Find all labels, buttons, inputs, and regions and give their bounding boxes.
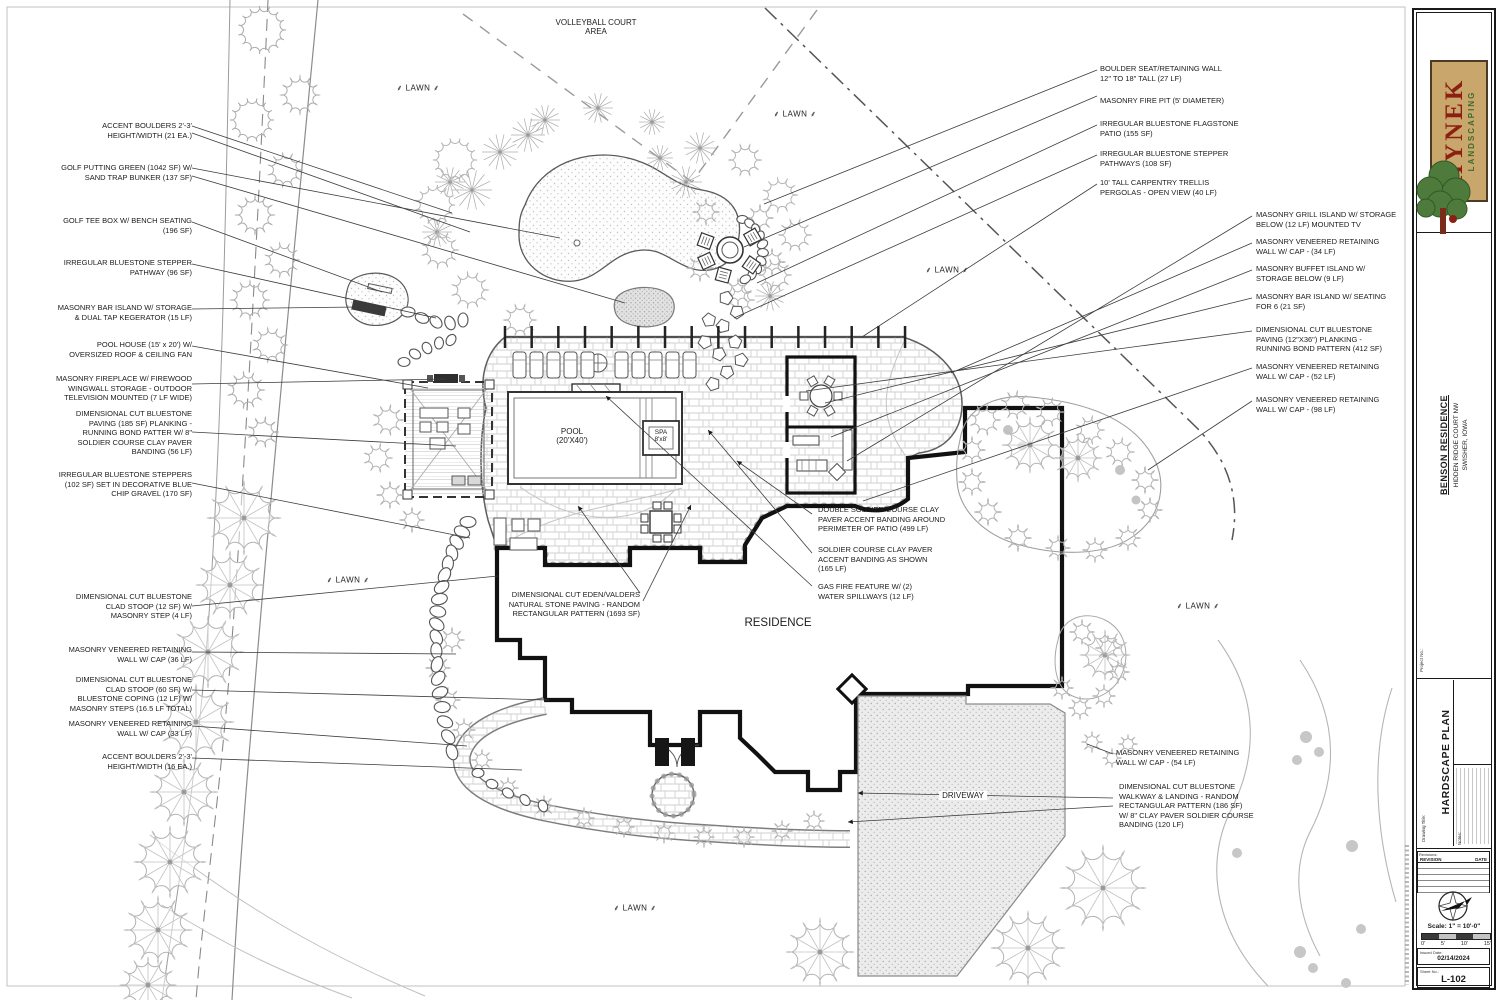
title-block-divider [1453,764,1492,765]
leader-line [951,243,1252,373]
callout-label: MASONRY BAR ISLAND W/ SEATING FOR 6 (21 … [1256,292,1386,311]
revisions-table: Revisions: REVISION DATE [1417,851,1490,893]
lawn-label: ⸙ LAWN ⸙ [773,109,816,120]
scale-tick: 15' [1484,941,1491,947]
callout-label: MASONRY FIREPLACE W/ FIREWOOD WINGWALL S… [56,374,192,403]
sand-bunker [614,287,674,326]
leader-line [192,726,467,746]
tree-icon [530,105,560,134]
boulder-icon [429,669,448,688]
tree-icon [583,93,613,122]
lounge-chair-icon [649,352,662,378]
drawing-title-label: Drawing Title: [1421,815,1426,842]
callout-label: MASONRY VENEERED RETAINING WALL W/ CAP (… [69,719,192,738]
sheet-number-value: L-102 [1418,974,1489,985]
shrub-icon [249,417,278,447]
callout-label: IRREGULAR BLUESTONE STEPPER PATHWAY (96 … [64,258,192,277]
shrub-icon [804,811,824,831]
tree-icon [197,552,263,618]
tree-icon [992,912,1064,984]
scale-tick: 0' [1421,941,1425,947]
lawn-label: ⸙ LAWN ⸙ [613,903,656,914]
lawn-label: ⸙ LAWN ⸙ [396,83,439,94]
tree-icon [208,482,280,554]
lawn-label: ⸙ LAWN ⸙ [1176,601,1219,612]
scale-text: Scale: 1" = 10'-0" [1414,923,1494,930]
callout-label: MASONRY VENEERED RETAINING WALL W/ CAP -… [1256,362,1379,381]
callout-label: DIMENSIONAL CUT EDEN/VALDERS NATURAL STO… [509,590,640,619]
leader-line [734,155,1097,318]
boulder-icon [444,333,458,348]
shrub-icon [1116,526,1140,550]
shrub-icon [416,185,455,225]
leader-line [1148,401,1252,470]
shrub-icon [453,719,475,741]
shrub-icon [231,281,269,319]
shrub-icon [1132,467,1158,493]
leader-line [192,690,549,700]
boulder-icon [434,337,444,349]
area-label: RESIDENCE [744,617,811,629]
leader-line [192,126,452,213]
lounge-chair-icon [564,352,577,378]
tree-icon [639,109,665,134]
shrub-icon [1107,661,1129,683]
lounge-chair-icon [632,352,645,378]
callout-label: POOL HOUSE (15' x 20') W/ OVERSIZED ROOF… [69,340,192,359]
tree-icon [787,919,853,985]
callout-label: 10' TALL CARPENTRY TRELLIS PERGOLAS - OP… [1100,178,1217,197]
callout-label: MASONRY VENEERED RETAINING WALL W/ CAP -… [1256,237,1379,256]
area-label: SPA 8'x8' [655,429,668,443]
shrub-icon [1083,538,1107,562]
callout-label: GAS FIRE FEATURE W/ (2) WATER SPILLWAYS … [818,582,914,601]
callout-label: DIMENSIONAL CUT BLUESTONE PAVING (12"X36… [1256,325,1382,354]
callout-label: DIMENSIONAL CUT BLUESTONE PAVING (185 SF… [76,409,192,457]
shrub-icon [1070,620,1094,644]
callout-label: MASONRY VENEERED RETAINING WALL W/ CAP -… [1256,395,1379,414]
project-title: BENSON RESIDENCE [1439,395,1449,495]
buffet-island [793,436,819,445]
issued-date-box: Issued Date: 02/14/2024 [1417,948,1490,965]
callout-label: GOLF TEE BOX W/ BENCH SEATING (196 SF) [63,216,192,235]
putting-hole [574,240,580,246]
shrub-icon [374,405,403,435]
boulder-icon [414,311,431,326]
boulder-icon [458,313,468,327]
shrub-icon [239,6,287,54]
outdoor-kitchen [783,357,855,493]
area-label: DRIVEWAY [939,791,987,800]
lounge-chair-icon [683,352,696,378]
shrub-icon [453,272,488,308]
boulder-icon [398,358,410,367]
callout-label: ACCENT BOULDERS 2'-3' HEIGHT/WIDTH (21 E… [102,121,192,140]
tree-icon [125,897,191,963]
pool-house [403,374,494,499]
boulder-icon [420,341,434,356]
callout-label: MASONRY BUFFET ISLAND W/ STORAGE BELOW (… [1256,264,1365,283]
callout-label: IRREGULAR BLUESTONE FLAGSTONE PATIO (155… [1100,119,1239,138]
leader-line [192,222,382,292]
project-info: BENSON RESIDENCE HIDDEN RIDGE COURT NW S… [1434,230,1474,660]
plan-sheet: ACCENT BOULDERS 2'-3' HEIGHT/WIDTH (21 E… [0,0,1500,1000]
north-arrow-compass [1431,888,1477,924]
callout-label: MASONRY FIRE PIT (5' DIAMETER) [1100,96,1224,106]
shrub-icon [433,139,477,182]
scale-tick: 10' [1461,941,1468,947]
boulder-icon [435,714,454,731]
shrub-icon [472,750,492,770]
sheet-number-box: Sheet No.: L-102 [1417,967,1490,988]
callout-label: DOUBLE SOLDIER COURSE CLAY PAVER ACCENT … [818,505,945,534]
tree-icon [135,827,205,897]
callout-label: MASONRY GRILL ISLAND W/ STORAGE BELOW (1… [1256,210,1396,229]
lounge-chair-icon [666,352,679,378]
shrub-icon [729,145,761,175]
callout-label: MASONRY BAR ISLAND W/ STORAGE & DUAL TAP… [58,303,192,322]
lawn-label: ⸙ LAWN ⸙ [925,265,968,276]
boulder-icon [443,315,457,332]
area-label: VOLLEYBALL COURT AREA [556,18,637,36]
boulder-icon [430,684,449,701]
fire-pit-area [717,237,743,263]
scale-bar: 0' 5' 10' 15' [1421,933,1491,947]
tree-icon [511,118,545,151]
shrub-icon [236,196,274,234]
tree-icon [482,134,518,169]
tree-icon [1061,846,1145,930]
area-label: POOL (20'X40') [556,427,588,445]
site-plan-drawing [0,0,1500,1000]
lounge-chair-icon [513,352,526,378]
fine-print-strip [1405,845,1409,985]
issued-date-value: 02/14/2024 [1418,955,1489,962]
chair-icon [800,392,808,400]
shrub-icon [764,178,797,212]
lawn-label: ⸙ LAWN ⸙ [326,575,369,586]
lounge-chair-icon [530,352,543,378]
shrub-icon [377,482,403,508]
callout-label: DIMENSIONAL CUT BLUESTONE CLAD STOOP (60… [70,675,192,713]
tree-icon [452,171,492,210]
tree-icon [435,167,465,196]
boulders-bottom-right [1232,731,1366,988]
title-block-divider [1416,848,1492,849]
lounge-chair-icon [581,352,594,378]
notes-label: Notes: [1457,832,1462,845]
wall-opening [783,442,790,458]
scale-tick: 5' [1441,941,1445,947]
shrub-icon [1138,498,1162,522]
boulder-icon [430,592,448,606]
leader-line [862,184,1097,337]
date-column-header: DATE [1475,857,1487,862]
shrub-icon [779,220,811,250]
lounge-chair-icon [547,352,560,378]
boulder-icon [472,769,484,778]
title-block-divider [1453,680,1454,846]
shrub-icon [365,444,392,472]
callout-label: DIMENSIONAL CUT BLUESTONE WALKWAY & LAND… [1119,782,1254,830]
chair-icon [715,267,731,283]
project-no-label: Project No.: [1419,648,1424,672]
leader-line [764,70,1097,204]
callout-label: GOLF PUTTING GREEN (1042 SF) W/ SAND TRA… [61,163,192,182]
tree-icon [684,132,716,163]
boulder-icon [428,313,445,330]
shrub-icon [423,232,458,268]
project-address: HIDDEN RIDGE COURT NW SWISHER, IOWA [1452,403,1470,488]
title-block-divider [1416,678,1492,679]
shrub-icon [229,372,264,408]
leader-line [1087,744,1113,754]
flagstone-icon [702,313,715,326]
callout-label: SOLDIER COURSE CLAY PAVER ACCENT BANDING… [818,545,932,574]
callout-label: DIMENSIONAL CUT BLUESTONE CLAD STOOP (12… [76,592,192,621]
callout-label: IRREGULAR BLUESTONE STEPPERS (102 SF) SE… [59,470,192,499]
entry-landing [652,738,695,816]
volleyball-court-boundary [463,10,817,182]
leader-line [192,307,358,309]
shrub-icon [1107,438,1134,466]
grill-island [797,460,827,471]
revision-column-header: REVISION [1420,857,1442,862]
logo-tree-icon [1412,148,1476,240]
wall-opening [783,396,790,412]
shrub-icon [230,99,274,142]
shrub-icon [254,328,287,362]
golf-tee-box [346,273,408,325]
boulder-icon [434,702,450,713]
callout-label: MASONRY VENEERED RETAINING WALL W/ CAP (… [69,645,192,664]
leader-line [757,125,1097,283]
callout-label: BOULDER SEAT/RETAINING WALL 12" TO 18" T… [1100,64,1222,83]
shrub-icon [1093,685,1115,707]
shrub-icon [1069,697,1091,719]
masonry-fireplace [434,374,458,383]
shrub-icon [440,628,464,652]
callout-label: IRREGULAR BLUESTONE STEPPER PATHWAYS (10… [1100,149,1228,168]
lounge-chair-icon [615,352,628,378]
shrub-icon [281,76,319,114]
boulder-icon [408,347,423,361]
callout-label: ACCENT BOULDERS 2'-3' HEIGHT/WIDTH (16 E… [102,752,192,771]
callout-label: MASONRY VENEERED RETAINING WALL W/ CAP -… [1116,748,1239,767]
boulder-icon [429,604,447,618]
counter [843,430,852,470]
